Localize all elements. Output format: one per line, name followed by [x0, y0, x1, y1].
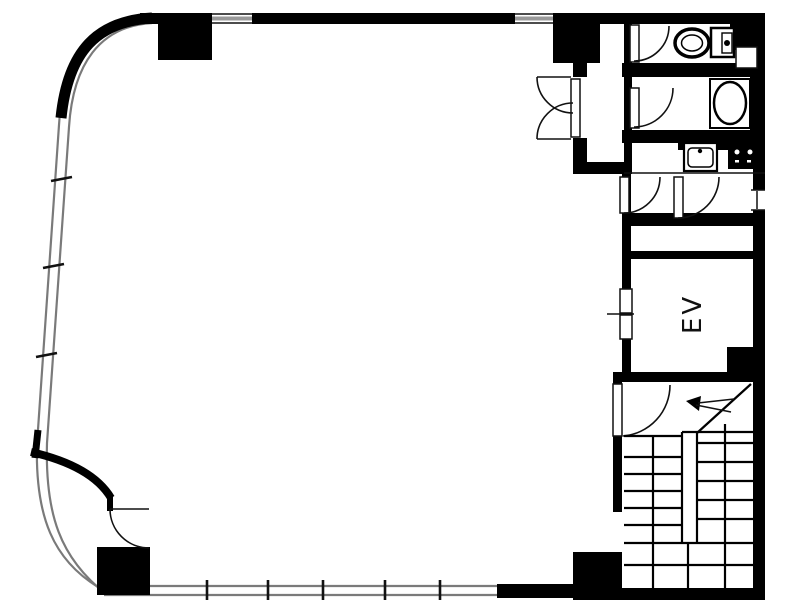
stove-knob	[735, 160, 739, 163]
window-gap	[751, 190, 765, 210]
door-leaf	[674, 177, 683, 218]
wall-bath-right	[750, 77, 765, 130]
window-glass-band	[212, 17, 252, 21]
column	[727, 347, 753, 372]
window-line-outer	[37, 14, 152, 587]
curved-wall-top-left	[61, 18, 152, 118]
window-wall-left	[36, 14, 152, 594]
door-arc-icon	[634, 88, 673, 127]
door-leaf	[620, 177, 629, 213]
door-arc-icon	[678, 177, 719, 218]
hall-doors	[620, 177, 719, 218]
window-top-2	[515, 13, 553, 24]
pipe-shaft-niche	[736, 47, 757, 68]
door-arc-icon	[110, 509, 149, 548]
door-arc-icon	[537, 103, 573, 139]
toilet-icon	[675, 28, 734, 57]
wall-vestibule-bottom	[573, 162, 631, 174]
window-notch-hall	[751, 190, 765, 210]
window-tick-icon	[51, 177, 72, 181]
door-arc-icon	[623, 385, 670, 436]
floor-plan-drawing: EV	[0, 0, 787, 613]
up-arrow-icon	[686, 396, 734, 412]
toilet-bowl-inner	[682, 35, 703, 51]
column	[573, 552, 622, 600]
bathtub-icon	[710, 79, 750, 128]
stove-knob	[747, 160, 751, 163]
door-leaf	[571, 79, 580, 137]
window-glass-band	[515, 17, 553, 21]
door-leaf	[630, 25, 639, 62]
bathroom	[630, 79, 750, 128]
double-door-vestibule	[537, 77, 580, 139]
wall-vestibule-jamb-top	[573, 60, 587, 77]
door-leaf	[630, 88, 639, 128]
stove-burner	[735, 150, 740, 155]
stair-treads	[624, 424, 753, 588]
bathtub-basin	[714, 82, 746, 124]
stove-burner	[748, 150, 753, 155]
column	[97, 547, 150, 595]
floor-plan: EV	[0, 0, 787, 613]
elevator-door-panel	[620, 315, 632, 339]
wall-bottom-right	[497, 584, 575, 598]
curved-wall-storage	[31, 452, 111, 498]
stove-icon	[728, 143, 758, 169]
window-tick-icon	[43, 264, 64, 268]
toilet-room	[630, 25, 734, 62]
column	[158, 15, 212, 60]
wall-ev-top	[622, 251, 765, 259]
wall-stair-bottom	[622, 588, 765, 600]
elevator-label: EV	[678, 294, 708, 334]
door-leaf	[613, 384, 622, 436]
kitchenette	[624, 143, 765, 173]
toilet-flush-knob	[724, 40, 730, 46]
sink-icon	[684, 143, 717, 171]
column	[553, 14, 600, 63]
window-top-1	[212, 13, 252, 24]
structural-walls	[97, 13, 765, 600]
stove-body	[728, 143, 758, 169]
sink-faucet	[698, 149, 702, 153]
staircase	[613, 384, 753, 588]
arrow-tail	[698, 399, 734, 403]
elevator-shaft: EV	[607, 289, 708, 339]
storage-room-bottom-left	[31, 452, 149, 548]
wall-ev-bottom	[613, 372, 765, 382]
window-wall-bottom	[98, 580, 500, 600]
elevator-door-panel	[620, 289, 632, 313]
